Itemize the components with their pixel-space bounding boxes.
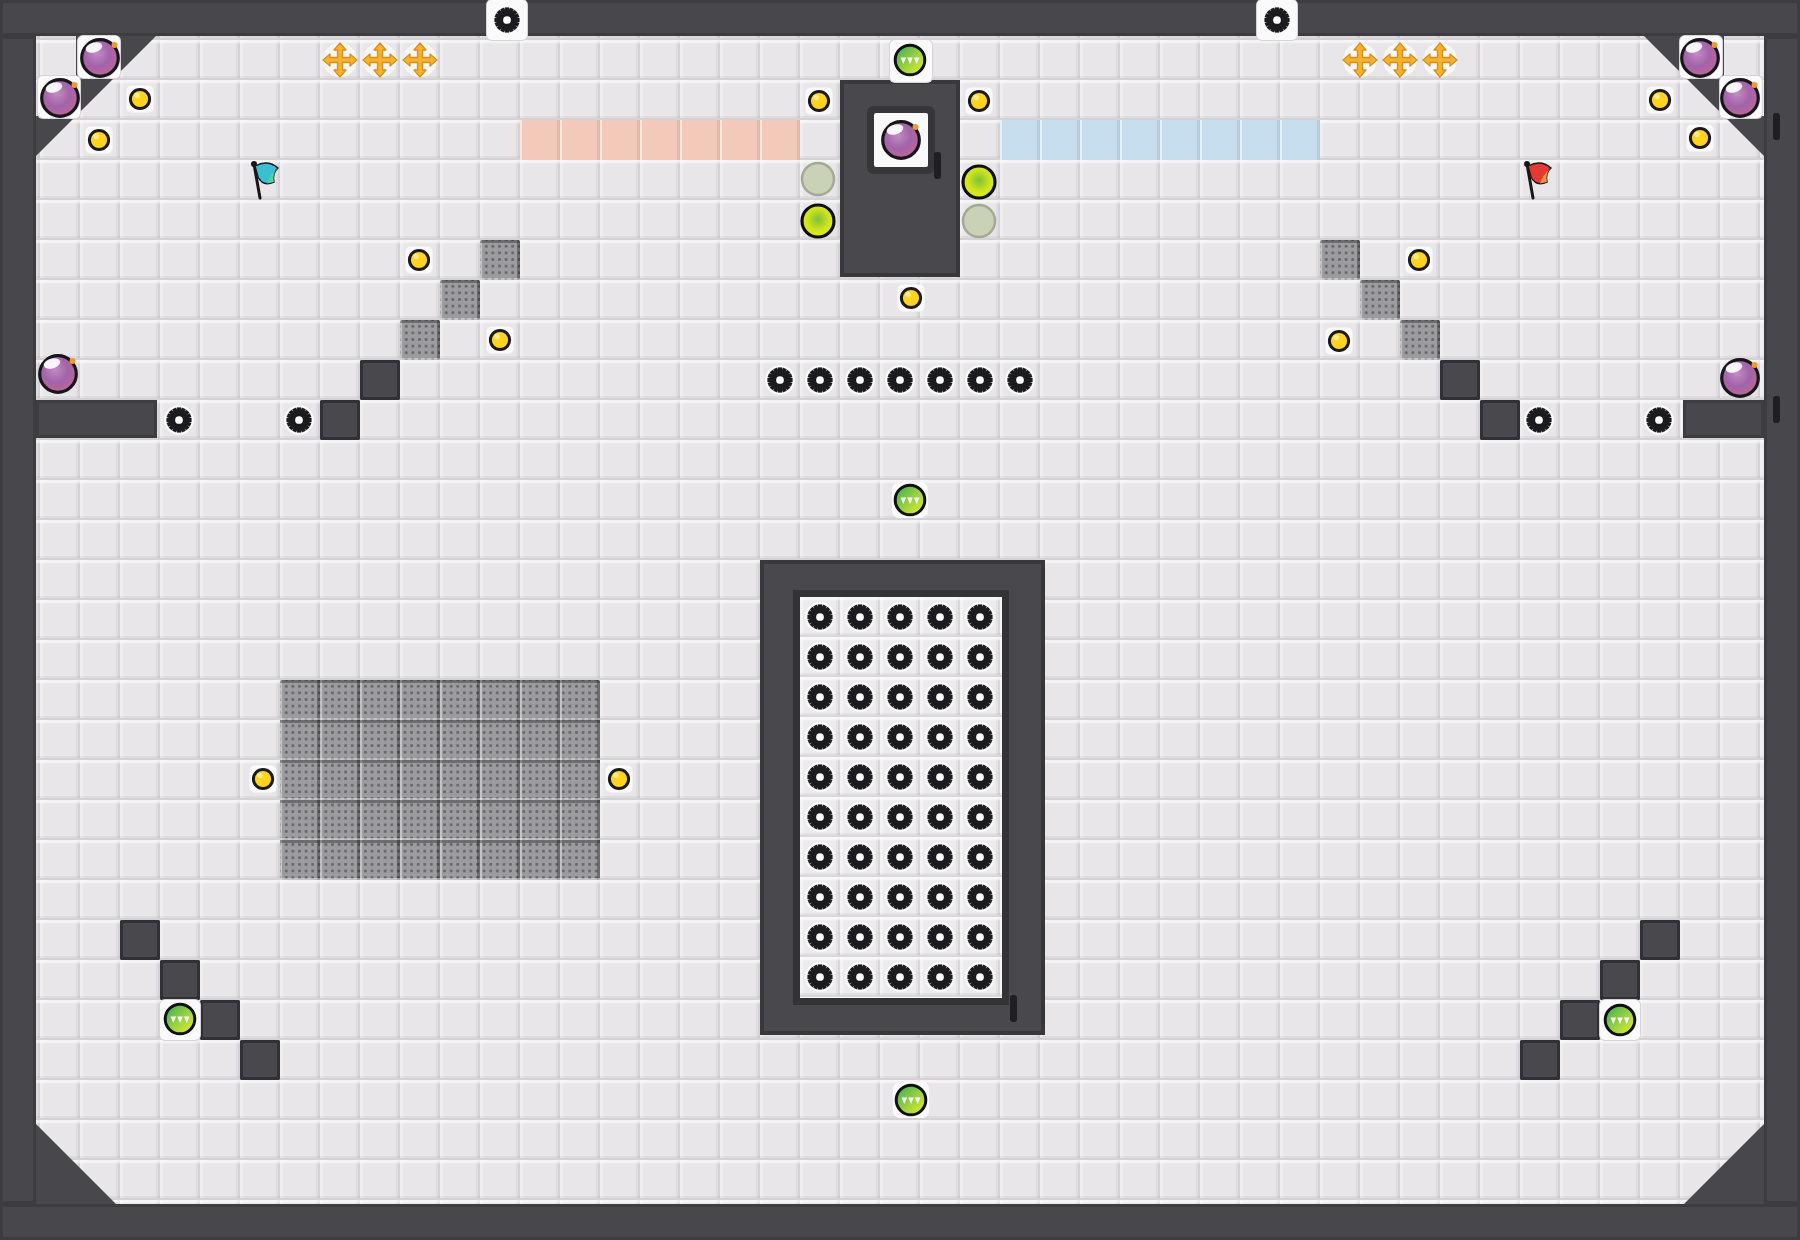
gold-coin: [83, 124, 115, 156]
door-marker: [1773, 396, 1780, 423]
wall-top: [0, 0, 1800, 36]
gold-cross: [1340, 40, 1380, 80]
energy-orb-active: [959, 162, 999, 202]
saw-blade: [161, 402, 197, 438]
ledge-left: [36, 400, 157, 438]
white-tile: [160, 1000, 200, 1040]
gold-cross: [320, 40, 360, 80]
saw-chamber-inner: [800, 597, 1002, 998]
gold-coin: [247, 763, 279, 795]
white-tile: [1680, 36, 1722, 78]
gold-cross: [400, 40, 440, 80]
saw-blade: [802, 362, 838, 398]
textured-block: [440, 280, 480, 320]
gold-coin: [1644, 84, 1676, 116]
bomb-cabin: [840, 80, 960, 277]
gold-coin: [803, 85, 835, 117]
saw-blade: [1521, 402, 1557, 438]
door-marker: [1010, 995, 1017, 1022]
gold-coin: [603, 763, 635, 795]
gold-coin: [484, 324, 516, 356]
energy-orb-inactive: [959, 201, 999, 241]
flag-red: [1509, 154, 1561, 206]
gold-coin: [1403, 244, 1435, 276]
gold-cross: [360, 40, 400, 80]
gold-coin: [124, 83, 156, 115]
dark-block: [1600, 960, 1640, 1000]
gold-cross: [1380, 40, 1420, 80]
gold-coin: [895, 282, 927, 314]
blue-platform: [1000, 120, 1320, 160]
saw-blade: [882, 362, 918, 398]
gold-coin: [1684, 122, 1716, 154]
saw-blade: [1641, 402, 1677, 438]
energy-orb-inactive: [798, 159, 838, 199]
saw-blade: [281, 402, 317, 438]
white-tile: [1720, 76, 1762, 118]
textured-block: [400, 320, 440, 360]
gold-coin: [403, 244, 435, 276]
wall-bottom: [0, 1204, 1800, 1240]
saw-blade: [1002, 362, 1038, 398]
white-tile: [487, 0, 527, 40]
gold-coin: [1323, 325, 1355, 357]
white-tile: [1257, 0, 1297, 40]
wall-left: [0, 36, 36, 1204]
dark-block: [1480, 400, 1520, 440]
bomb: [35, 351, 81, 397]
bomb: [1717, 355, 1763, 401]
dark-block: [320, 400, 360, 440]
dark-block: [240, 1040, 280, 1080]
cabin-window: [874, 113, 928, 167]
pink-platform: [520, 120, 800, 160]
dark-block: [200, 1000, 240, 1040]
white-tile: [1600, 1000, 1640, 1040]
saw-blade: [762, 362, 798, 398]
ledge-right: [1683, 400, 1764, 438]
energy-orb-active: [798, 201, 838, 241]
white-tile: [38, 76, 80, 118]
dark-block: [1440, 360, 1480, 400]
textured-block: [1360, 280, 1400, 320]
textured-area: [280, 680, 600, 880]
dark-block: [1520, 1040, 1560, 1080]
flag-teal: [236, 154, 288, 206]
door-marker: [1773, 113, 1780, 140]
dark-block: [1640, 920, 1680, 960]
door-marker: [934, 152, 941, 179]
textured-block: [1320, 240, 1360, 280]
wall-right: [1764, 36, 1800, 1204]
white-tile: [78, 36, 120, 78]
textured-block: [480, 240, 520, 280]
dark-block: [120, 920, 160, 960]
dark-block: [1560, 1000, 1600, 1040]
saw-blade: [962, 362, 998, 398]
white-tile: [890, 40, 932, 82]
level-canvas[interactable]: [0, 0, 1800, 1240]
saw-blade: [922, 362, 958, 398]
saw-blade: [842, 362, 878, 398]
gold-cross: [1420, 40, 1460, 80]
green-orb: [891, 1080, 931, 1120]
textured-block: [1400, 320, 1440, 360]
green-orb: [890, 480, 930, 520]
gold-coin: [963, 85, 995, 117]
dark-block: [160, 960, 200, 1000]
dark-block: [360, 360, 400, 400]
